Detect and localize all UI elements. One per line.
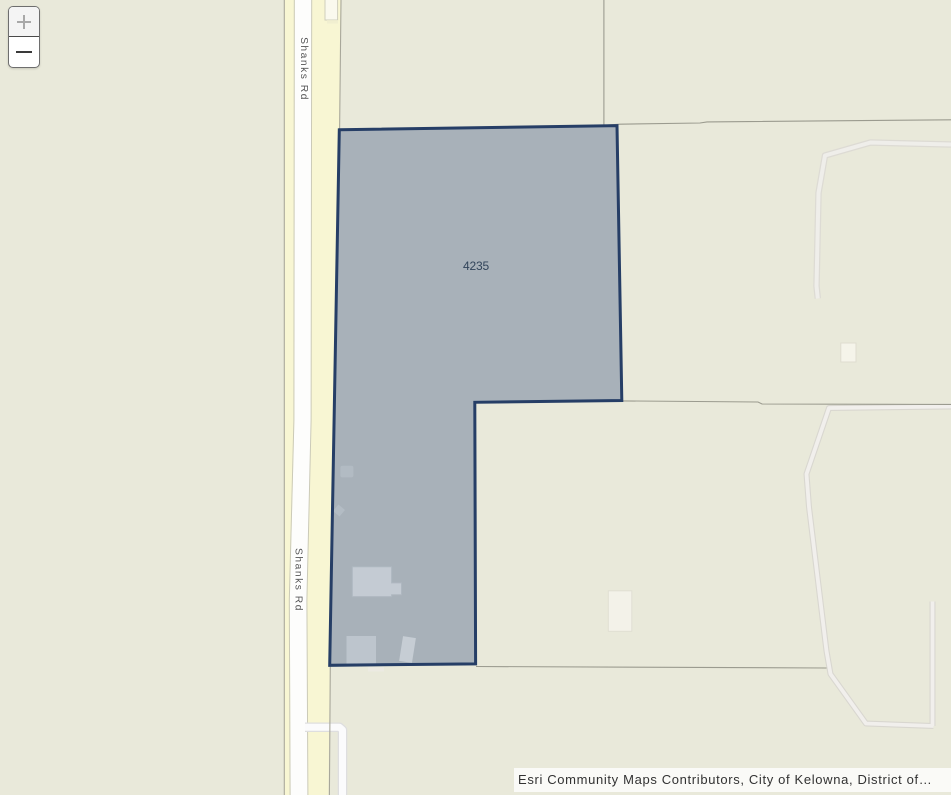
svg-text:Shanks Rd: Shanks Rd <box>298 37 309 101</box>
svg-text:4235: 4235 <box>463 259 489 273</box>
svg-text:Shanks Rd: Shanks Rd <box>293 548 304 612</box>
